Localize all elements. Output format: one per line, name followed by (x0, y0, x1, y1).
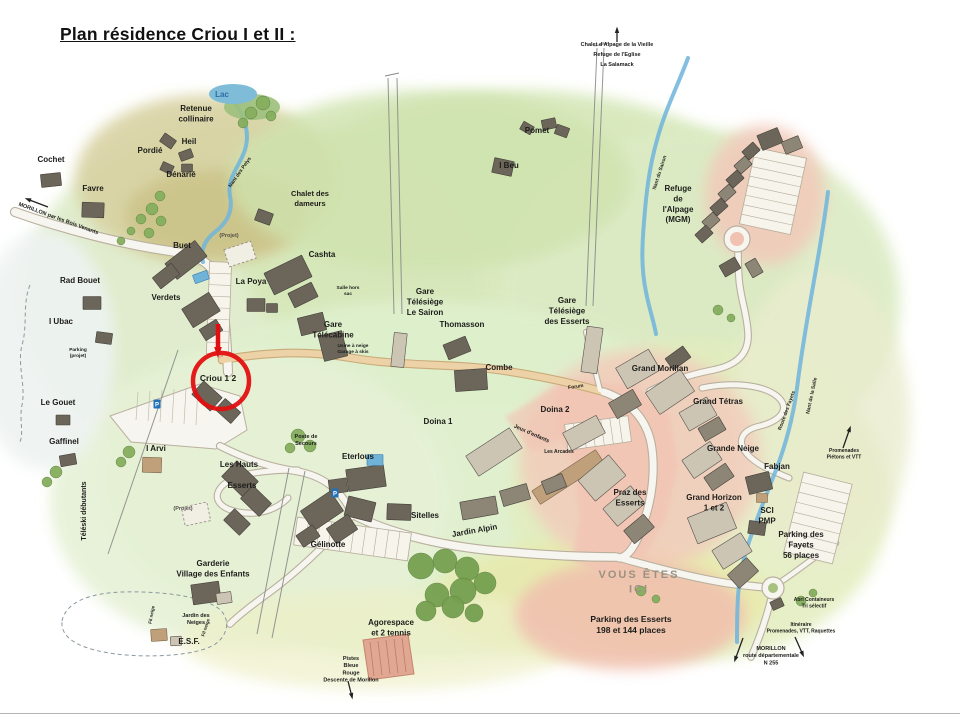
map-label-line: I Ubac (49, 317, 74, 326)
map-label-line: Eterlous (342, 452, 375, 461)
tree (416, 601, 436, 621)
building-footprint (95, 331, 112, 344)
map-label-line: Les Hauts (220, 460, 259, 469)
map-label-line: Combe (485, 363, 513, 372)
building (267, 304, 278, 313)
terrain-wash (230, 90, 630, 270)
map-label-line: Dénarié (166, 170, 196, 179)
slide-edge (0, 713, 960, 714)
map-label-line: Doina 2 (541, 405, 570, 414)
map-label-line: MORILLON (756, 646, 785, 652)
map-label-line: Sitelles (411, 511, 440, 520)
map-label-line: collinaire (178, 114, 214, 123)
map-label-line: Rouge (342, 670, 359, 676)
map-label: Poste deSecours (295, 434, 318, 447)
map-label: Agorespaceet 2 tennis (368, 618, 414, 637)
map-label-line: Fayets (788, 540, 814, 549)
building (95, 331, 112, 344)
map-label: Parking des Esserts198 et 144 places (590, 614, 672, 635)
map-label-line: Retenue (180, 104, 212, 113)
building-footprint (40, 172, 61, 187)
direction-arrow-head (25, 198, 32, 202)
tree (442, 596, 464, 618)
map-label-line: Gare (558, 296, 577, 305)
map-label: Grand Tétras (693, 397, 743, 406)
map-label: Combe (485, 363, 513, 372)
map-label-line: Rad Bouet (60, 276, 100, 285)
building-footprint (267, 304, 278, 313)
map-label: Verdets (152, 293, 181, 302)
map-label-line: Descente de Morillon (323, 677, 379, 683)
map-label-line: Cashta (309, 250, 336, 259)
map-label-line: et 2 tennis (371, 628, 411, 637)
map-label-line: PMP (758, 516, 776, 525)
tree (433, 549, 457, 573)
map-label-line: Usine à neige (338, 343, 369, 349)
building (83, 297, 101, 310)
map-label-line: ICI (629, 583, 649, 595)
map-label: Téléski débutants (81, 481, 88, 540)
map-label-line: Parking (69, 347, 87, 353)
direction-arrow-head (615, 27, 619, 33)
map-label: Chalet desdameurs (291, 189, 329, 208)
slide: PPLacRetenuecollinaireHeilPordiéDénariéC… (0, 0, 960, 720)
map-label: Gélinotte (311, 540, 346, 549)
map-label-line: Parking des Esserts (590, 614, 672, 624)
building-footprint (247, 299, 265, 312)
map-label-line: 198 et 144 places (596, 625, 666, 635)
map-label-line: VOUS ÊTES (599, 568, 680, 581)
tree (256, 96, 270, 110)
parking-marker: P (332, 489, 339, 498)
map-label-line: Gare (416, 287, 435, 296)
tree (116, 457, 126, 467)
building-footprint (387, 504, 412, 521)
map-label: SCIPMP (758, 506, 776, 525)
map-label: La Poya (236, 277, 267, 286)
map-label-line: sac (344, 292, 352, 297)
parking-marker-letter: P (333, 492, 337, 498)
map-label-line: (projet) (70, 353, 87, 359)
roundabout-center (730, 232, 744, 246)
map-label-line: Gare (324, 320, 343, 329)
map-label-line: Pistes (343, 656, 359, 662)
map-label-line: Cochet (37, 155, 64, 164)
map-label-line: Chalet d'Alpage de la Vieille (581, 42, 654, 48)
map-label: I Ubac (49, 317, 74, 326)
map-label-line: Heil (182, 137, 197, 146)
map-label: Doina 1 (424, 417, 453, 426)
map-label-line: Piétons et VTT (827, 455, 862, 461)
map-label: Refugedel'Alpage(MGM) (663, 184, 694, 224)
map-label-line: Grand Horizon (686, 493, 742, 502)
tree (144, 228, 154, 238)
map-label: Buet (173, 241, 191, 250)
map-label-line: Les Arcades (544, 449, 574, 455)
map-label: Fabjan (764, 462, 790, 471)
map-label: Dénarié (166, 170, 196, 179)
map-label-line: La Poya (236, 277, 267, 286)
building (387, 504, 412, 521)
tree (809, 589, 817, 597)
building-footprint (454, 368, 487, 391)
tree (50, 466, 62, 478)
map-label-line: Télécabine (312, 330, 354, 339)
map-label-line: Le Gouet (41, 398, 76, 407)
building (56, 415, 70, 425)
map-label-line: Poste de (295, 434, 318, 440)
map-label-line: dameurs (294, 199, 325, 208)
map-label: Doina 2 (541, 405, 570, 414)
building (59, 453, 77, 467)
map-label-line: Itinéraire (790, 622, 811, 628)
tree (155, 191, 165, 201)
map-label-line: 56 places (783, 551, 820, 560)
map-label: Le Gouet (41, 398, 76, 407)
map-label-line: Téléski débutants (81, 481, 88, 540)
map-label-line: Doina 1 (424, 417, 453, 426)
building (454, 368, 487, 391)
map-label-line: Criou 1 2 (200, 373, 237, 383)
map-label: Favre (82, 184, 104, 193)
map-label-line: La Salamack (600, 62, 634, 68)
map-label: Rad Bouet (60, 276, 100, 285)
map-label: Sitelles (411, 511, 440, 520)
map-label: PromenadesPiétons et VTT (827, 448, 862, 461)
roundabout-center (768, 583, 778, 593)
building-footprint (216, 592, 232, 605)
map-label-line: Gélinotte (311, 540, 346, 549)
tree (285, 443, 295, 453)
map-label: Chalet d'Alpage de la VieilleRefuge de l… (581, 42, 654, 68)
direction-arrow-head (799, 650, 804, 657)
map-label-line: Gaffinel (49, 437, 79, 446)
building-footprint (757, 494, 768, 503)
map-label-line: Agorespace (368, 618, 414, 627)
map-label: Grande Neige (707, 444, 760, 453)
page-title: Plan résidence Criou I et II : (60, 24, 296, 45)
tree (465, 604, 483, 622)
building-footprint (59, 453, 77, 467)
map-label-line: Salle hors (337, 285, 360, 291)
map-label-line: Buet (173, 241, 191, 250)
map-label-line: Promenades, VTT, Raquettes (767, 629, 836, 635)
map-label: Pomet (525, 126, 550, 135)
map-label: (Projet) (219, 233, 238, 239)
building (142, 457, 162, 473)
map-label-line: I Beu (499, 161, 519, 170)
map-label: Les Hauts (220, 460, 259, 469)
tree (652, 595, 660, 603)
map-label: Criou 1 2 (200, 373, 237, 383)
building (40, 172, 61, 187)
map-label-line: Lac (215, 90, 229, 99)
map-label-line: Bleue (344, 663, 359, 669)
map-label: Cashta (309, 250, 336, 259)
map-label-line: Refuge (664, 184, 692, 193)
map-label-line: Télésiège (407, 297, 444, 306)
map-label: Pordié (138, 146, 163, 155)
map-label-line: Garage à skis (337, 349, 369, 355)
map-label-line: I Arvi (146, 444, 166, 453)
building-footprint (82, 202, 105, 218)
map-label-line: SCI (760, 506, 773, 515)
map-label-line: Neiges (187, 620, 205, 626)
map-label: Eterlous (342, 452, 375, 461)
map-label-line: Grand Tétras (693, 397, 743, 406)
map-label-line: Abri Containeurs (794, 597, 835, 603)
map-label: (Projet) (173, 506, 192, 512)
map-label-line: Promenades (829, 448, 859, 454)
tree (245, 107, 257, 119)
map-label-line: Verdets (152, 293, 181, 302)
map-label-line: Pomet (525, 126, 550, 135)
detail-line (385, 73, 399, 76)
map-label-line: Grand Morillan (632, 364, 689, 373)
map-label-line: Fabjan (764, 462, 790, 471)
map-label-line: 1 et 2 (704, 503, 725, 512)
tree (266, 111, 276, 121)
map-label-line: Esserts (616, 498, 645, 507)
tree (156, 216, 166, 226)
map-label: Cochet (37, 155, 64, 164)
map-label-line: Refuge de l'Eglise (593, 52, 640, 58)
area (363, 634, 414, 680)
map-label: Thomasson (440, 320, 485, 329)
map-label-line: Secours (295, 441, 317, 447)
map-label-line: Parking des (778, 530, 824, 539)
map-label-line: Le Sairon (407, 308, 444, 317)
map-label-line: E.S.F. (178, 637, 199, 646)
map-label: I Beu (499, 161, 519, 170)
tree (42, 477, 52, 487)
tree (408, 553, 434, 579)
tree (123, 446, 135, 458)
building (216, 592, 232, 605)
map-label: Grand Morillan (632, 364, 689, 373)
parking-marker-letter: P (155, 403, 159, 409)
map-label-line: N 255 (764, 660, 779, 666)
map-label-line: Grande Neige (707, 444, 760, 453)
map-label: Esserts (228, 481, 257, 490)
map-label: Retenuecollinaire (178, 104, 214, 123)
building (151, 628, 168, 641)
map-label-line: Praz des (614, 488, 647, 497)
tree (727, 314, 735, 322)
map-label-line: Garderie (197, 559, 230, 568)
map-label-line: route départementale (743, 653, 799, 659)
map-layers: PPLacRetenuecollinaireHeilPordiéDénariéC… (0, 27, 910, 700)
map-label-line: l'Alpage (663, 205, 694, 214)
map-label-line: Chalet des (291, 189, 329, 198)
tree (117, 237, 125, 245)
map-label-line: de (673, 194, 683, 203)
resort-map: PPLacRetenuecollinaireHeilPordiéDénariéC… (0, 0, 960, 720)
parking-marker: P (154, 400, 161, 409)
tree (713, 305, 723, 315)
map-label: Heil (182, 137, 197, 146)
map-label: Lac (215, 90, 229, 99)
map-label-line: Village des Enfants (176, 569, 250, 578)
tree (136, 214, 146, 224)
map-label: Les Arcades (544, 449, 574, 455)
map-label: Praz desEsserts (614, 488, 647, 507)
map-label-line: (MGM) (666, 215, 691, 224)
map-label: Gaffinel (49, 437, 79, 446)
map-label-line: (Projet) (173, 506, 192, 512)
map-label-line: Télésiège (549, 306, 586, 315)
map-label-line: des Esserts (545, 317, 590, 326)
building-footprint (56, 415, 70, 425)
direction-arrow-head (349, 693, 353, 700)
map-label-line: Tri sélectif (802, 604, 827, 610)
building (82, 202, 105, 218)
map-label-line: (Projet) (219, 233, 238, 239)
building (247, 299, 265, 312)
building-footprint (142, 457, 162, 473)
map-label-line: Thomasson (440, 320, 485, 329)
building-footprint (151, 628, 168, 641)
map-label-line: Favre (82, 184, 104, 193)
tree (474, 572, 496, 594)
map-label: I Arvi (146, 444, 166, 453)
map-label: E.S.F. (178, 637, 199, 646)
map-label-line: Pordié (138, 146, 163, 155)
tree (127, 227, 135, 235)
tree (238, 118, 248, 128)
map-label-line: Esserts (228, 481, 257, 490)
tree (146, 203, 158, 215)
building (757, 494, 768, 503)
building-footprint (83, 297, 101, 310)
